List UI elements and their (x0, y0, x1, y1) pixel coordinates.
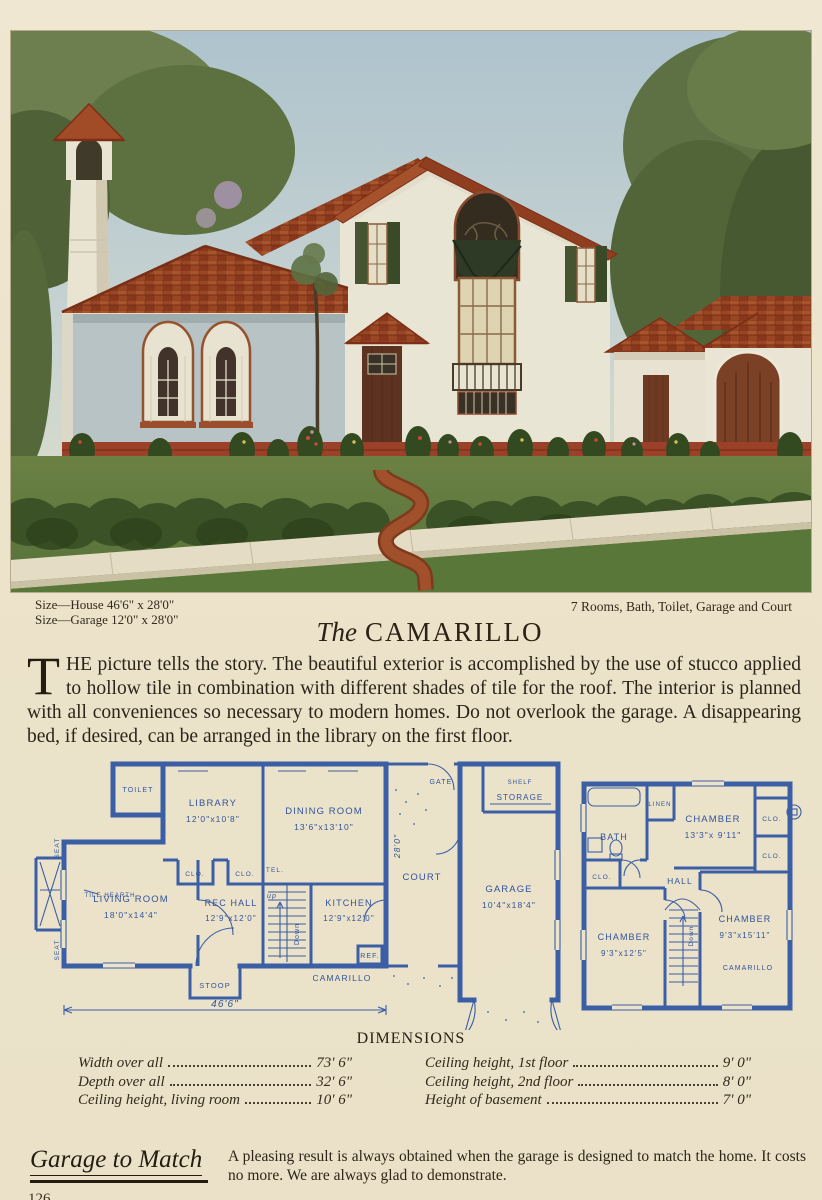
label-court: COURT (402, 872, 441, 883)
label-dining-size: 13'6"x13'10" (294, 822, 354, 832)
dim-label: Ceiling height, 2nd floor (425, 1073, 573, 1092)
garage-to-match-text: Garage to Match (30, 1146, 202, 1176)
dim-value: 7' 0" (723, 1091, 751, 1110)
label-seat-a: SEAT (54, 838, 61, 859)
dot-leader (245, 1102, 311, 1104)
dim-value: 9' 0" (723, 1054, 751, 1073)
dim-value: 8' 0" (723, 1073, 751, 1092)
dimension-row: Ceiling height, 1st floor9' 0" (425, 1054, 751, 1073)
label-clo-b: CLO. (235, 871, 255, 878)
label-garage: GARAGE (485, 884, 532, 895)
label-rec-hall-size: 12'9"x12'0" (205, 914, 257, 923)
label-down-2: Down (688, 925, 695, 946)
label-chamber-c: CHAMBER (719, 914, 772, 924)
dimensions-left-column: Width over all73' 6" Depth over all32' 6… (78, 1054, 352, 1110)
label-garage-size: 10'4"x18'4" (482, 900, 536, 910)
label-shelf: SHELF (508, 780, 533, 786)
label-width-dim: 46'6" (211, 999, 239, 1010)
dimension-row: Width over all73' 6" (78, 1054, 352, 1073)
label-toilet: TOILET (123, 787, 154, 794)
second-floor-plan: BATH LINEN CHAMBER 13'3"x 9'11" CLO. CLO… (572, 760, 802, 1018)
dim-value: 32' 6" (316, 1073, 352, 1092)
size-house: Size—House 46'6" x 28'0" (35, 597, 178, 612)
label-chamber-b-size: 9'3"x12'5" (601, 949, 647, 958)
dimension-row: Ceiling height, living room10' 6" (78, 1091, 352, 1110)
label-up: up (267, 893, 277, 900)
garage-to-match-paragraph: A pleasing result is always obtained whe… (228, 1147, 806, 1185)
room-features: 7 Rooms, Bath, Toilet, Garage and Court (571, 599, 792, 615)
dim-label: Ceiling height, living room (78, 1091, 240, 1110)
dot-leader (547, 1102, 718, 1104)
page-title: TheCAMARILLO (38, 617, 822, 648)
label-kitchen-size: 12'9"x12'0" (323, 914, 375, 923)
label-library-size: 12'0"x10'8" (186, 814, 240, 824)
label-storage: STORAGE (497, 793, 544, 802)
label-chamber-b: CHAMBER (598, 932, 651, 942)
label-gate: GATE (430, 779, 453, 786)
catalog-page: Size—House 46'6" x 28'0" Size—Garage 12'… (0, 0, 822, 1200)
label-clo-top: CLO. (762, 816, 782, 823)
label-plan-name-2: CAMARILLO (723, 965, 773, 972)
dimensions-section: DIMENSIONS Width over all73' 6" Depth ov… (0, 1030, 822, 1048)
dim-label: Height of basement (425, 1091, 542, 1110)
label-seat-b: SEAT (54, 940, 61, 961)
label-stoop: STOOP (199, 981, 231, 990)
dimension-row: Ceiling height, 2nd floor8' 0" (425, 1073, 751, 1092)
garage-to-match-heading: Garage to Match (30, 1146, 208, 1183)
dimension-row: Height of basement7' 0" (425, 1091, 751, 1110)
description-paragraph: THE picture tells the story. The beautif… (27, 653, 801, 749)
dim-value: 10' 6" (316, 1091, 352, 1110)
label-rec-hall: REC HALL (205, 898, 258, 908)
label-kitchen: KITCHEN (325, 898, 372, 908)
label-clo-mid: CLO. (762, 853, 782, 860)
label-tile-hearth: TILE HEARTH (85, 893, 136, 899)
label-hall: HALL (667, 876, 693, 886)
drop-cap: T (27, 653, 66, 697)
title-the: The (317, 617, 358, 647)
house-illustration (10, 30, 812, 593)
label-dining: DINING ROOM (285, 806, 363, 817)
dot-leader (578, 1084, 717, 1086)
dim-label: Depth over all (78, 1073, 165, 1092)
label-chamber-a-size: 13'3"x 9'11" (685, 830, 742, 840)
dimensions-heading: DIMENSIONS (0, 1030, 822, 1048)
title-name: CAMARILLO (365, 617, 544, 647)
label-bath: BATH (600, 832, 628, 842)
dimension-row: Depth over all32' 6" (78, 1073, 352, 1092)
dimensions-right-column: Ceiling height, 1st floor9' 0" Ceiling h… (425, 1054, 751, 1110)
label-linen: LINEN (648, 802, 671, 808)
label-clo-left: CLO. (592, 874, 612, 881)
label-chamber-a: CHAMBER (685, 814, 740, 825)
label-clo-a: CLO. (185, 871, 205, 878)
dim-value: 73' 6" (316, 1054, 352, 1073)
label-library: LIBRARY (189, 798, 237, 809)
first-floor-plan: TOILET LIBRARY 12'0"x10'8" DINING ROOM 1… (28, 750, 568, 1030)
dot-leader (573, 1065, 717, 1067)
dot-leader (168, 1065, 311, 1067)
label-plan-name-1: CAMARILLO (312, 973, 371, 983)
label-chamber-c-size: 9'3"x15'11" (720, 931, 771, 940)
label-court-depth: 28'0" (392, 834, 402, 859)
label-ref: REF. (360, 953, 380, 960)
dim-label: Width over all (78, 1054, 163, 1073)
label-tel: TEL. (266, 867, 284, 874)
label-down: Down (294, 923, 301, 945)
floor-plans: TOILET LIBRARY 12'0"x10'8" DINING ROOM 1… (0, 748, 822, 1033)
label-living-size: 18'0"x14'4" (104, 910, 158, 920)
dot-leader (170, 1084, 312, 1086)
description-text: HE picture tells the story. The beautifu… (27, 654, 801, 747)
page-number: 126 (28, 1191, 51, 1200)
dim-label: Ceiling height, 1st floor (425, 1054, 568, 1073)
